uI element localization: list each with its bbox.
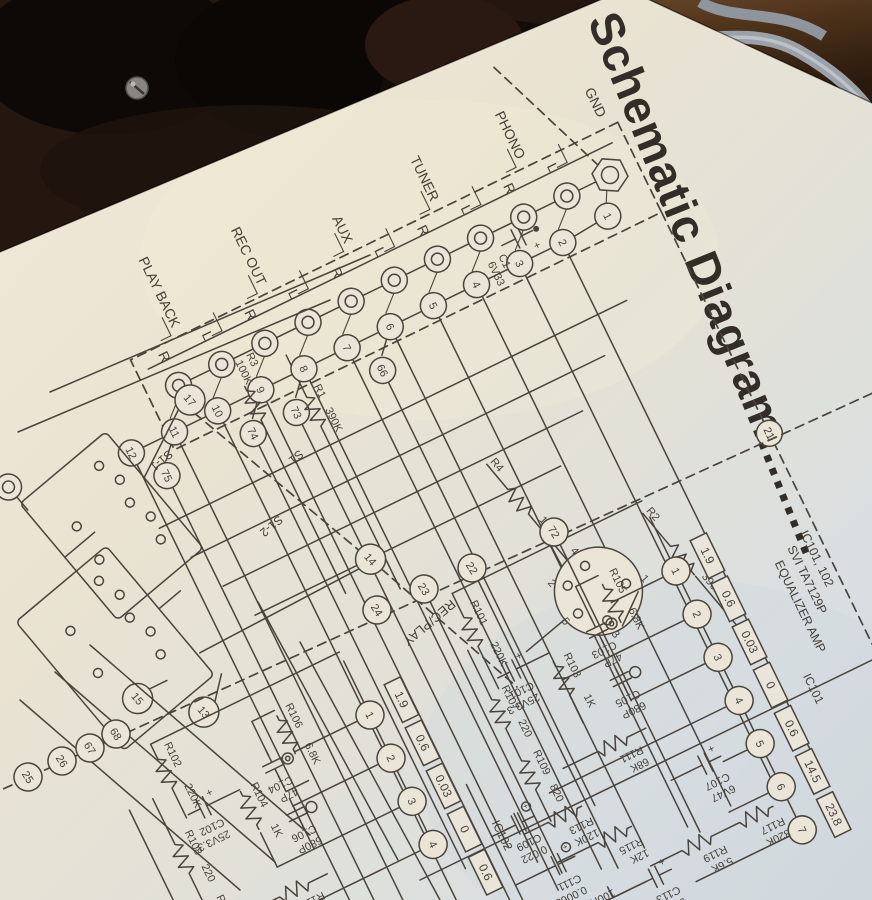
photo-of-schematic-page: Schematic Diagram.........GNDLRPHONOLRTU… xyxy=(0,0,872,900)
photo-canvas: Schematic Diagram.........GNDLRPHONOLRTU… xyxy=(0,0,872,900)
screw-glint xyxy=(130,81,135,86)
